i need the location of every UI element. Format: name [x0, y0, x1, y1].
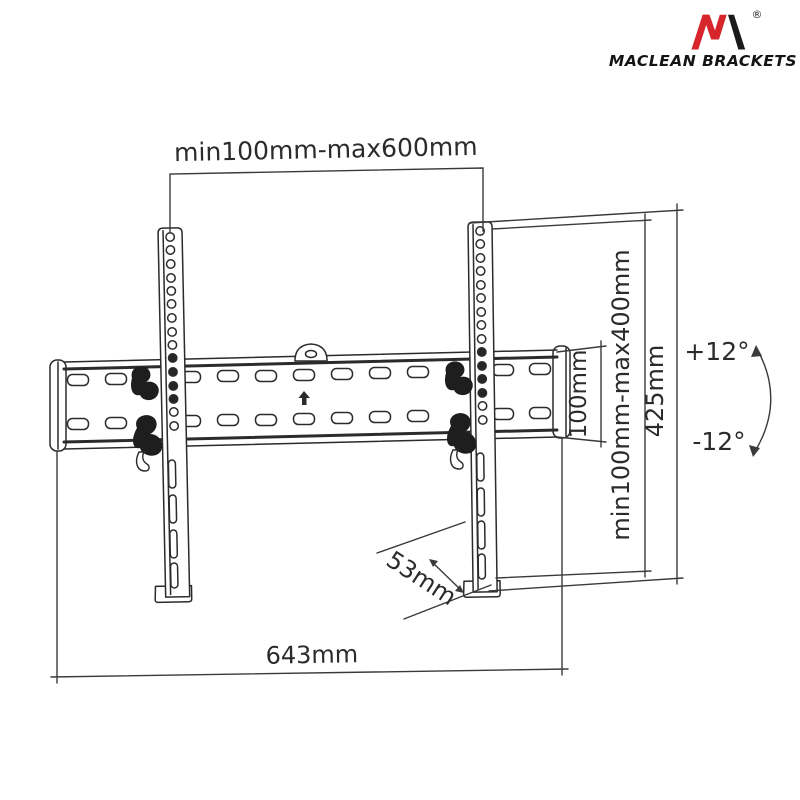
brand-name: MACLEAN BRACKETS — [609, 52, 797, 70]
label-top-width: min100mm-max600mm — [174, 132, 478, 167]
technical-drawing-page: ® MACLEAN BRACKETS — [0, 0, 800, 800]
up-arrow-marking — [299, 391, 311, 405]
dim-top-width-line — [170, 168, 483, 233]
tilt-arrowhead-up — [751, 345, 762, 357]
label-tilt-up: +12° — [684, 337, 749, 366]
wall-mount-diagram: ® MACLEAN BRACKETS — [0, 0, 800, 800]
label-tilt-down: -12° — [692, 427, 745, 456]
right-upper-clamp-knob — [445, 361, 473, 395]
left-upper-clamp-knob — [131, 366, 159, 400]
tilt-arc — [754, 349, 771, 453]
left-tv-bracket — [147, 228, 191, 603]
safety-hook — [295, 344, 327, 361]
maclean-m-icon — [691, 15, 745, 50]
label-total-width: 643mm — [265, 640, 358, 670]
right-tv-bracket — [458, 222, 500, 597]
label-vesa-vertical: min100mm-max400mm — [607, 249, 635, 540]
label-bracket-height: 425mm — [641, 345, 669, 438]
label-profile-height: 100mm — [566, 350, 592, 439]
maclean-logo: ® MACLEAN BRACKETS — [609, 8, 797, 70]
left-bracket-clamps — [131, 366, 162, 471]
left-lower-clamp-lever — [133, 415, 162, 456]
registered-mark: ® — [752, 8, 763, 21]
